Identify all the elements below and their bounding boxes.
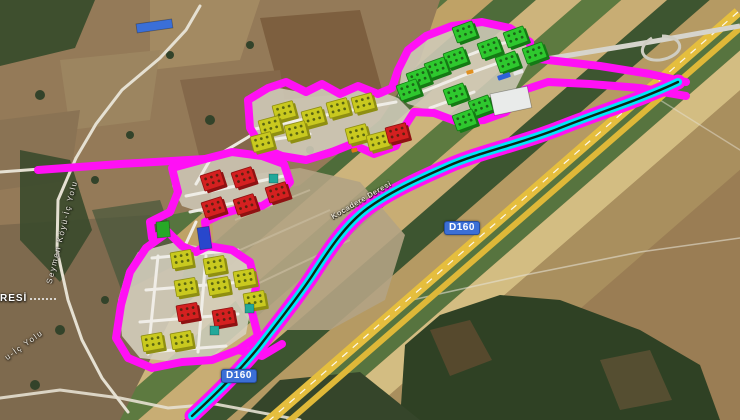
- teal-building: [210, 326, 219, 335]
- building-marker-south-yellow: [207, 276, 233, 299]
- building-marker-south-red: [176, 302, 202, 325]
- teal-building: [245, 304, 254, 313]
- teal-building: [269, 174, 278, 183]
- building-marker-south-yellow: [203, 255, 229, 278]
- building-marker-south-yellow: [174, 277, 200, 300]
- satellite-map-view[interactable]: D160 D160 Kocadere Deresi Seymen Köyü-İç…: [0, 0, 740, 420]
- blue-building: [197, 226, 212, 249]
- building-marker-south-yellow: [233, 268, 259, 291]
- building-marker-south-yellow: [170, 249, 196, 272]
- map-canvas: [0, 0, 740, 420]
- green-building: [156, 221, 170, 238]
- building-marker-south-yellow: [170, 330, 196, 353]
- building-marker-south-yellow: [141, 332, 167, 355]
